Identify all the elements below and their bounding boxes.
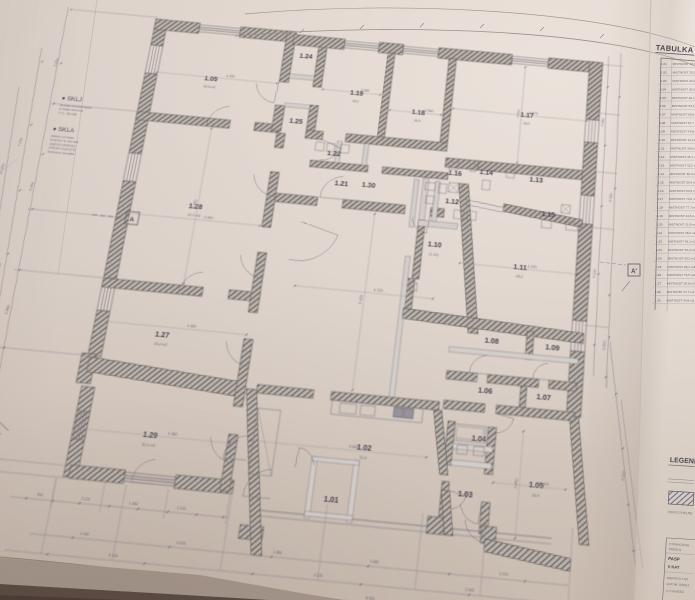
svg-text:26,2: 26,2 [516, 274, 524, 279]
svg-text:4 120: 4 120 [528, 264, 537, 269]
svg-text:4 360: 4 360 [168, 431, 178, 437]
svg-text:1 450: 1 450 [129, 501, 139, 507]
svg-text:2 850: 2 850 [273, 550, 283, 556]
svg-text:2 210: 2 210 [176, 505, 186, 511]
svg-text:1.21: 1.21 [334, 180, 349, 189]
svg-text:6 420: 6 420 [358, 294, 364, 304]
svg-text:5 870: 5 870 [601, 340, 607, 350]
svg-text:3 450: 3 450 [513, 478, 519, 489]
svg-text:1.07: 1.07 [536, 393, 551, 403]
svg-text:4 120: 4 120 [592, 269, 598, 279]
svg-text:5 650: 5 650 [349, 444, 359, 450]
svg-text:1.27: 1.27 [154, 331, 170, 341]
svg-text:1.08: 1.08 [484, 337, 499, 346]
svg-text:7 150: 7 150 [17, 138, 24, 147]
svg-text:A: A [129, 217, 136, 224]
svg-text:22,4: 22,4 [359, 455, 367, 461]
svg-text:3 120: 3 120 [81, 496, 91, 502]
svg-text:950: 950 [37, 492, 44, 498]
svg-text:6 200: 6 200 [0, 263, 2, 273]
svg-text:4 720: 4 720 [373, 288, 383, 293]
svg-text:3 250: 3 250 [53, 58, 60, 67]
svg-text:● SKLA: ● SKLA [52, 126, 75, 134]
svg-text:2 150: 2 150 [79, 531, 89, 537]
svg-text:4 350: 4 350 [204, 215, 214, 220]
svg-text:6 350: 6 350 [608, 193, 614, 202]
svg-text:16,4: 16,4 [414, 118, 421, 123]
svg-text:1.09: 1.09 [545, 344, 560, 354]
svg-text:18,2: 18,2 [352, 99, 359, 104]
svg-text:1.15: 1.15 [541, 211, 556, 220]
svg-text:4 870: 4 870 [529, 111, 538, 116]
svg-text:3 160: 3 160 [465, 587, 475, 593]
svg-text:2 050: 2 050 [425, 108, 434, 113]
svg-text:32,5 m2: 32,5 m2 [203, 84, 216, 89]
svg-text:2 420: 2 420 [539, 481, 549, 487]
svg-text:1.14: 1.14 [479, 169, 494, 178]
svg-text:1.05: 1.05 [204, 75, 219, 83]
svg-text:1.16: 1.16 [448, 170, 463, 179]
svg-text:2 280: 2 280 [361, 88, 370, 93]
svg-text:1.12: 1.12 [445, 198, 460, 207]
svg-text:4 250: 4 250 [226, 74, 235, 79]
svg-text:8 450: 8 450 [365, 595, 375, 600]
svg-text:1.13: 1.13 [529, 176, 544, 185]
svg-text:3 450: 3 450 [369, 559, 379, 565]
svg-text:30,1 m2: 30,1 m2 [141, 442, 156, 448]
svg-text:24,6: 24,6 [523, 121, 530, 126]
svg-text:4 380: 4 380 [187, 323, 197, 328]
svg-text:3 975: 3 975 [176, 540, 186, 546]
svg-text:4 230: 4 230 [313, 572, 323, 578]
svg-text:1.24: 1.24 [299, 53, 314, 61]
svg-text:1.03: 1.03 [457, 490, 473, 500]
svg-text:1.25: 1.25 [289, 118, 304, 126]
svg-text:6 125: 6 125 [108, 553, 118, 559]
svg-text:1.30: 1.30 [361, 181, 376, 190]
svg-text:41,2 m2: 41,2 m2 [187, 213, 201, 219]
svg-text:1.06: 1.06 [478, 387, 494, 397]
svg-text:28,4 m2: 28,4 m2 [153, 341, 167, 347]
svg-text:2 975: 2 975 [499, 571, 509, 577]
svg-text:2 460: 2 460 [600, 118, 605, 127]
svg-text:18,9: 18,9 [532, 493, 540, 499]
svg-text:12 450: 12 450 [0, 164, 6, 175]
svg-text:● SKLJ: ● SKLJ [61, 96, 83, 104]
svg-text:1.10: 1.10 [427, 241, 442, 250]
svg-text:1.01: 1.01 [323, 495, 339, 505]
svg-text:(1.10): (1.10) [429, 252, 439, 257]
